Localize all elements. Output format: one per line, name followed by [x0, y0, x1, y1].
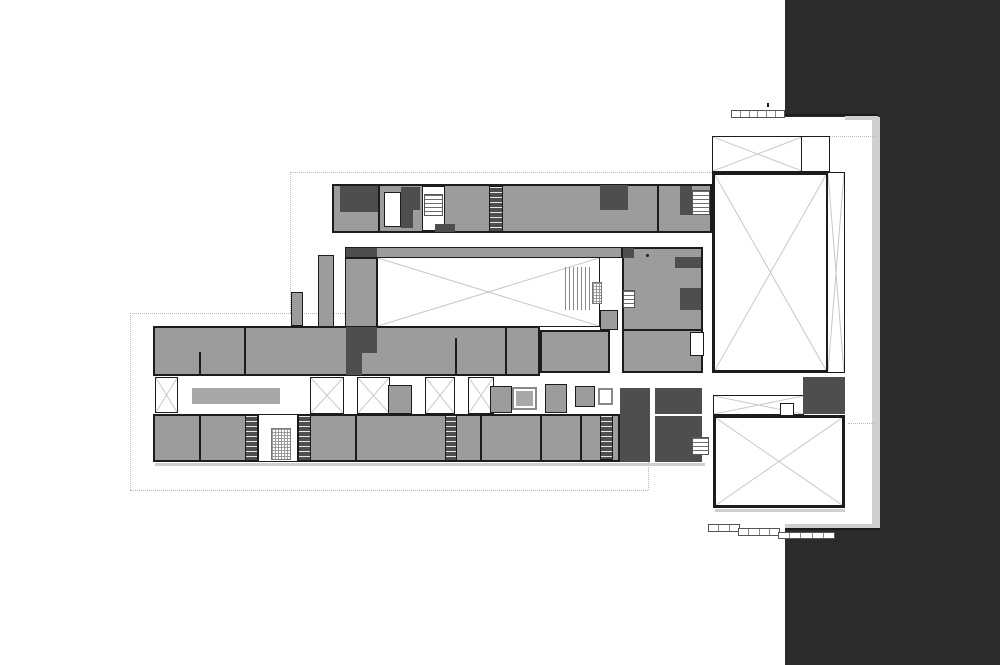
mid-east-stair	[623, 290, 635, 308]
dark-edge-shadow-vertical	[872, 117, 880, 524]
site-boundary-left-lower	[130, 313, 131, 490]
scale-bar-top-tick	[767, 103, 769, 107]
mid-east-column-dot	[646, 254, 649, 257]
lower-rooms-divider-e	[580, 414, 582, 462]
site-dark-mass-top	[785, 0, 1000, 117]
courtyard-stair	[565, 267, 593, 310]
upper-rooms-divider-d	[505, 326, 507, 376]
mid-center-block	[540, 330, 610, 373]
lightwell-block-3	[545, 384, 567, 413]
lightwell-block-1	[388, 385, 412, 414]
stair-core-a	[245, 415, 258, 461]
lightwell-bay-1	[155, 377, 178, 413]
stair-core-c	[445, 415, 457, 461]
annex-lower-shadow	[715, 509, 845, 512]
top-wing-room-divider-b	[657, 184, 659, 233]
lightwell-block-2	[490, 386, 512, 413]
top-wing-stair-east	[692, 190, 710, 215]
west-link-stub	[291, 292, 303, 326]
annex-lower-hall	[713, 415, 845, 508]
lightwell-bay-2	[310, 377, 344, 414]
gallery-core-cells	[346, 248, 377, 257]
core-cells-west-gallery	[346, 327, 377, 353]
entry-door-line	[168, 460, 205, 462]
scale-bar-bottom-2	[738, 528, 780, 536]
top-wing-core-d	[600, 185, 628, 210]
site-boundary-top	[290, 172, 712, 173]
corridor-furniture	[192, 388, 280, 404]
corridor-white-box	[598, 388, 613, 405]
courtyard-gallery-left	[345, 258, 377, 327]
dark-edge-canopy	[845, 116, 878, 120]
central-stair	[271, 428, 291, 460]
annex-core	[803, 377, 845, 414]
site-boundary-annex	[830, 136, 877, 137]
mid-east-core-a	[623, 248, 634, 258]
annex-hall-strip	[827, 172, 845, 373]
east-core-block-1	[620, 388, 650, 462]
top-wing-core-a	[340, 186, 378, 212]
mid-east-white-cells	[690, 332, 704, 356]
top-wing-core-b	[401, 187, 420, 210]
stair-core-b	[298, 415, 311, 461]
mid-east-core-wedges	[680, 288, 701, 310]
site-boundary-bottom	[130, 490, 648, 491]
lower-rooms-divider-d	[540, 414, 542, 462]
top-wing-core-b2	[401, 210, 413, 228]
mid-east-wall	[622, 329, 703, 331]
lightwell-block-4	[575, 386, 595, 407]
upper-rooms-divider-c	[455, 338, 457, 376]
site-dark-mass-right	[880, 117, 1000, 530]
site-boundary-annex-lower	[848, 423, 876, 424]
annex-entry-box-side	[801, 136, 830, 172]
lower-rooms-divider-b	[355, 414, 357, 462]
cross-lines	[828, 173, 844, 372]
top-wing-core-c	[435, 224, 455, 232]
cross-lines	[156, 378, 177, 412]
courtyard-east-walk	[600, 310, 618, 330]
site-dark-mass-bottom	[785, 530, 1000, 665]
scale-bar-bottom-3	[778, 532, 835, 539]
cross-lines	[713, 137, 802, 171]
upper-rooms-divider-a	[199, 352, 201, 376]
cross-lines	[358, 378, 389, 413]
east-core-block-2a	[655, 388, 702, 414]
cross-lines	[716, 418, 842, 505]
lightwell-bay-3	[357, 377, 390, 414]
core-cells-west-gallery-2	[346, 353, 362, 375]
top-wing-room-divider-a	[378, 184, 380, 233]
lower-rooms-divider-a	[199, 414, 201, 462]
cross-lines	[715, 175, 826, 370]
top-wing-stair-core	[489, 186, 503, 232]
top-wing-white-room	[384, 192, 401, 227]
lower-rooms-divider-c	[480, 414, 482, 462]
site-boundary-step	[130, 313, 345, 314]
upper-rooms-divider-b	[244, 326, 246, 376]
corridor-window-inset	[516, 391, 533, 406]
annex-entry-box	[712, 136, 803, 172]
cross-lines	[426, 378, 454, 413]
scale-bar-bottom-1	[708, 524, 740, 532]
stair-core-d	[600, 415, 613, 460]
east-stair	[692, 437, 709, 455]
top-wing-core-e	[680, 186, 692, 215]
cross-lines	[311, 378, 343, 413]
annex-hall	[712, 172, 829, 373]
dark-edge-line-bottom	[785, 528, 880, 530]
mid-east-core-b	[675, 257, 701, 268]
lower-wing-lower-rooms	[153, 414, 620, 462]
top-wing-stair	[424, 194, 443, 216]
floor-plan	[0, 0, 1000, 665]
lightwell-bay-4	[425, 377, 455, 414]
scale-bar-top	[731, 110, 785, 118]
site-boundary-right-stub	[648, 462, 649, 490]
west-link-corridor	[318, 255, 334, 327]
courtyard-elevator	[592, 282, 602, 304]
lower-wing-bottom-shadow	[155, 463, 705, 466]
